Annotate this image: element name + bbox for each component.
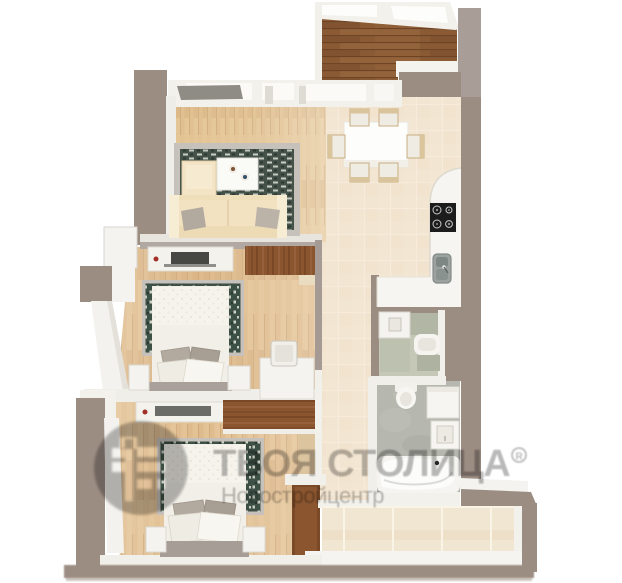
svg-text:ТВОЯ СТОЛИЦА: ТВОЯ СТОЛИЦА [213,443,510,485]
svg-text:R: R [516,452,524,463]
svg-text:Новостройцентр: Новостройцентр [221,483,384,508]
